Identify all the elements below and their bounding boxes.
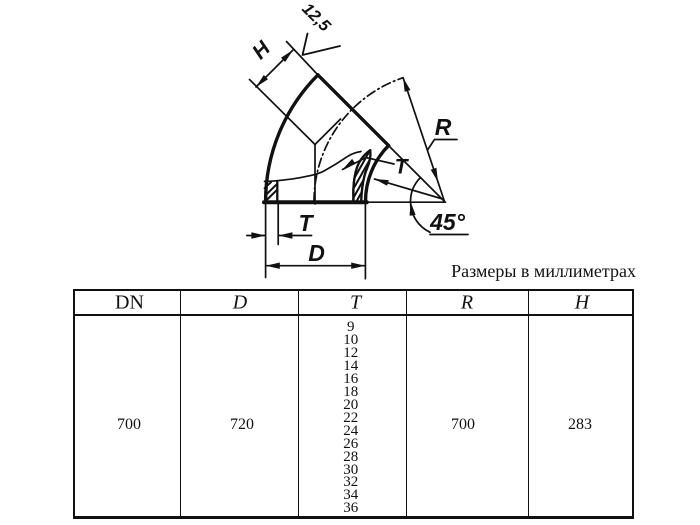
svg-text:T: T (298, 210, 314, 236)
svg-text:R: R (435, 114, 452, 140)
svg-text:45°: 45° (429, 209, 466, 235)
svg-text:T: T (395, 156, 410, 179)
svg-text:H: H (248, 36, 276, 64)
svg-text:D: D (308, 240, 325, 266)
svg-text:12,5: 12,5 (298, 0, 334, 36)
